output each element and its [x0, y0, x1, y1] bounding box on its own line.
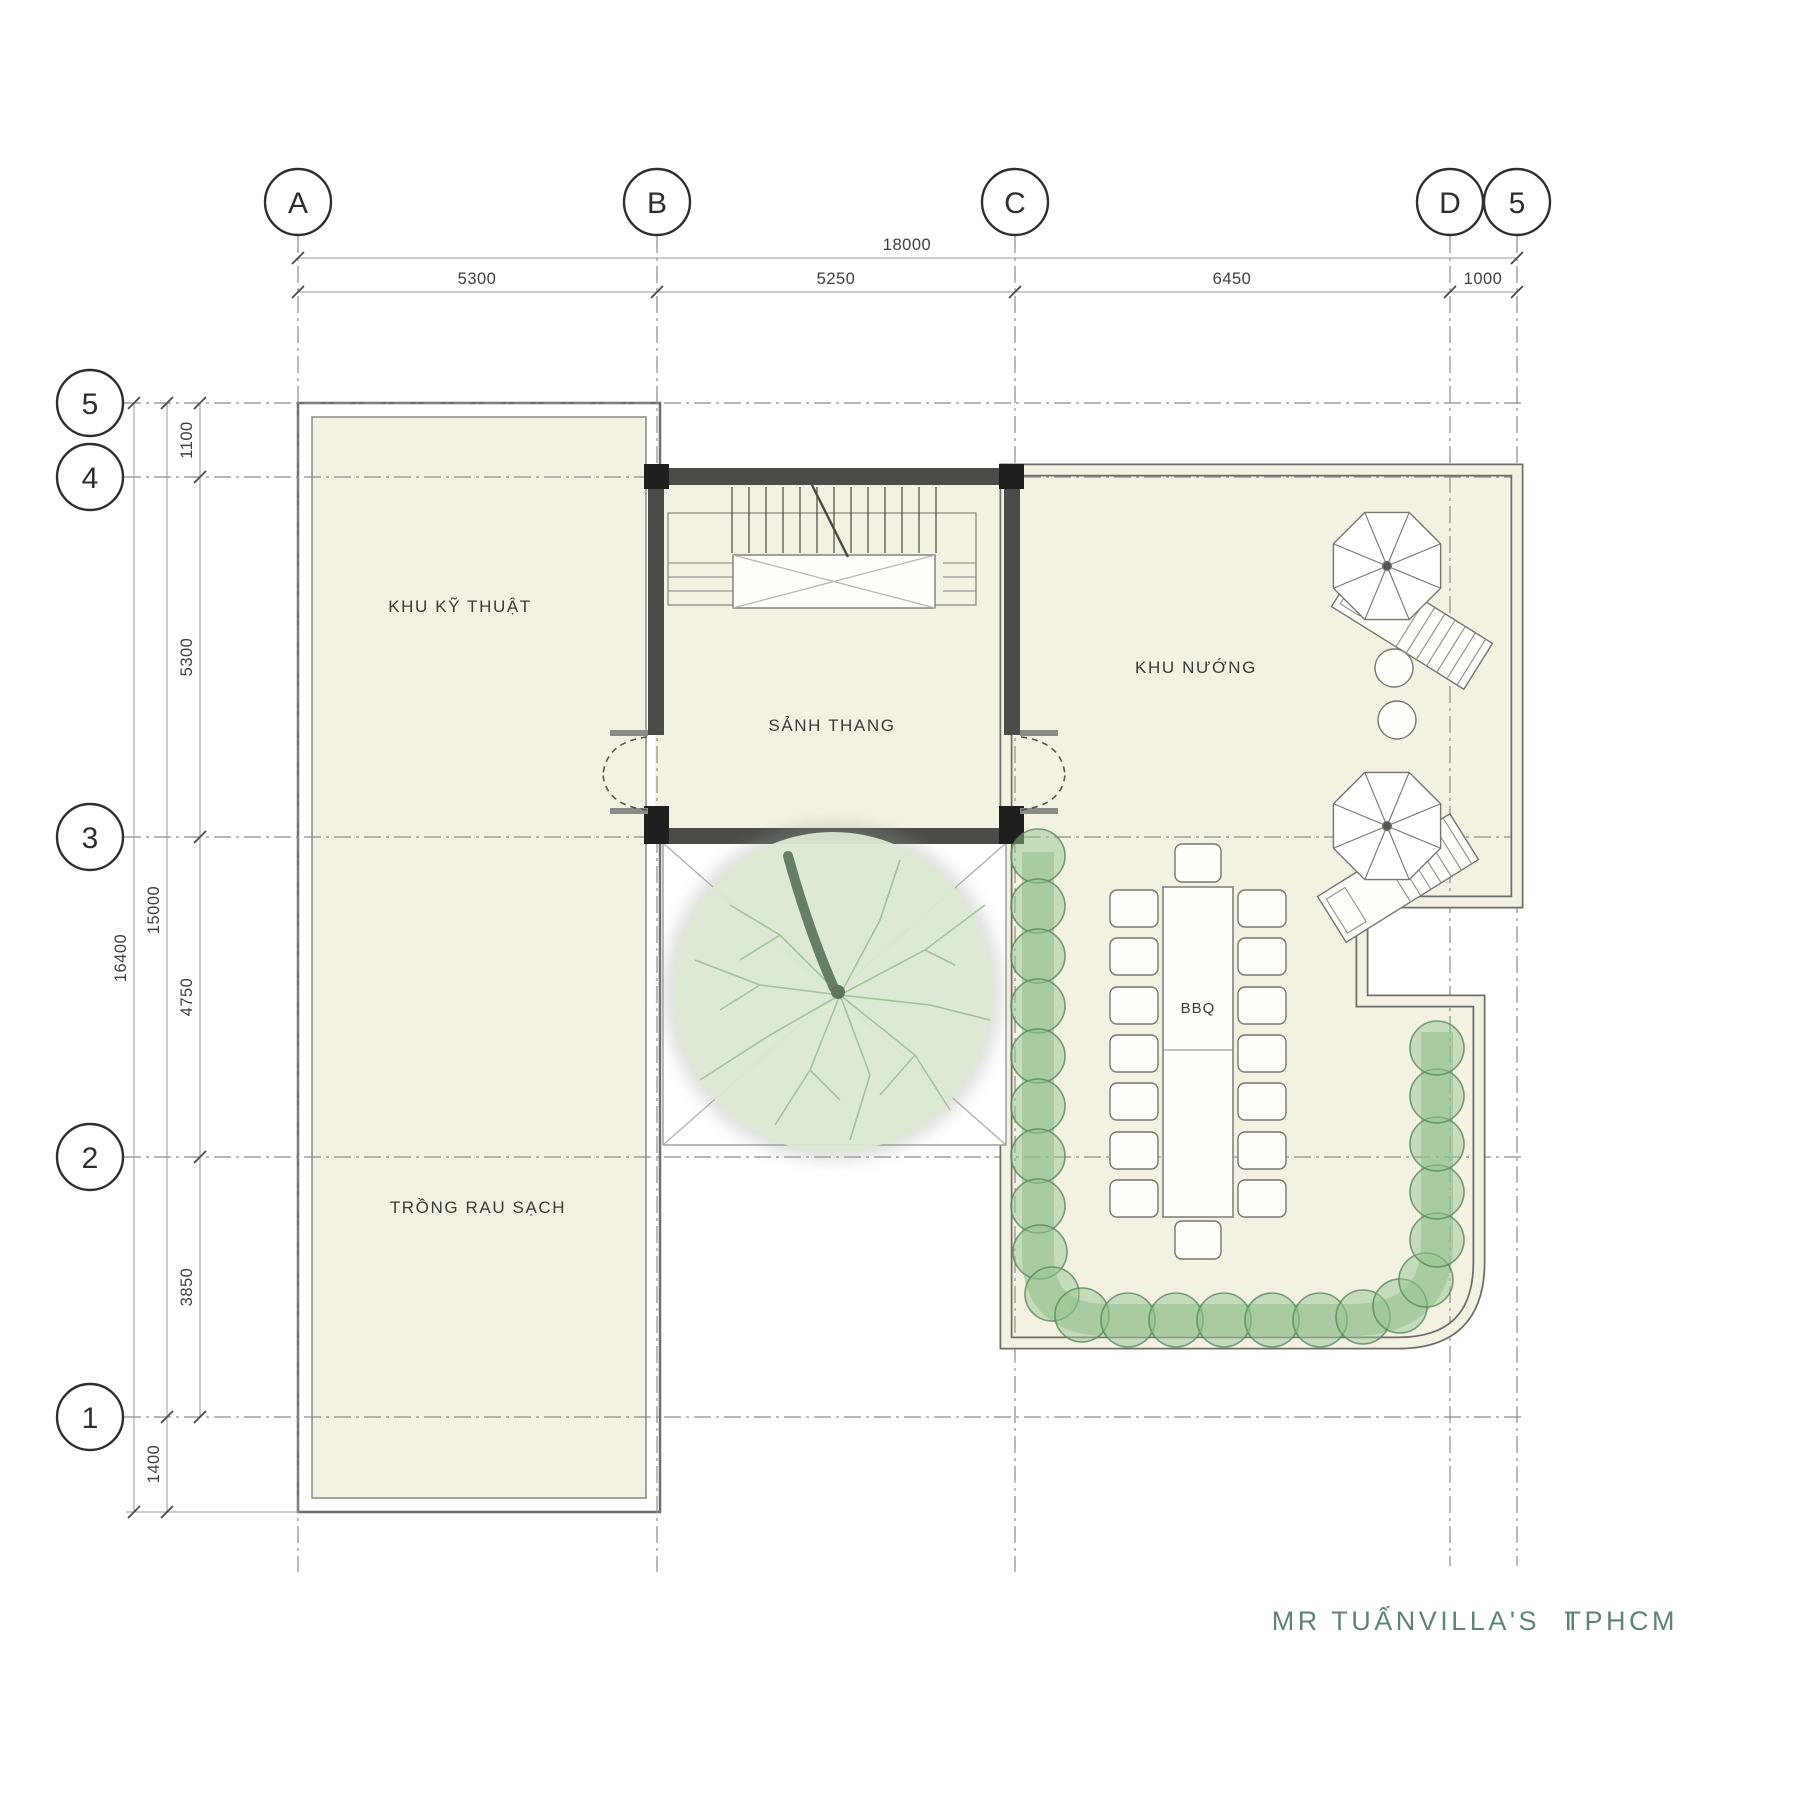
bbq-set: BBQ — [1110, 844, 1286, 1259]
left-dimensions: 16400 15000 1400 1100 5300 4750 3850 — [112, 397, 298, 1518]
grid-label-2: 2 — [82, 1142, 99, 1175]
dim-seg-d5: 1000 — [1464, 270, 1503, 288]
title-location: TPHCM — [1565, 1606, 1679, 1636]
dim-total-width: 18000 — [883, 236, 931, 254]
dim-below-row1: 1400 — [145, 1445, 163, 1484]
room-label-grill: KHU NƯỚNG — [1135, 658, 1257, 677]
room-label-vegetable: TRỒNG RAU SẠCH — [390, 1198, 566, 1217]
bbq-label: BBQ — [1181, 1000, 1216, 1017]
side-table-1 — [1375, 649, 1413, 687]
dim-seg-32: 4750 — [178, 978, 196, 1017]
dim-seg-54: 1100 — [178, 421, 196, 458]
grid-label-B: B — [647, 187, 667, 220]
door-stub-left-top — [610, 730, 648, 736]
door-stub-right-top — [1020, 730, 1058, 736]
drawing-title: MR TUẤNVILLA'S I TPHCM — [1272, 1605, 1678, 1636]
stair-wall-left — [648, 468, 664, 735]
title-client: MR TUẤNVILLA'S — [1272, 1605, 1540, 1636]
grid-bubbles-left: 5 4 3 2 1 — [57, 370, 123, 1450]
top-dimensions: 18000 5300 5250 6450 1000 — [292, 236, 1523, 298]
tree-trunk-center — [831, 985, 845, 999]
bbq-table — [1163, 887, 1233, 1217]
dim-overall-height: 16400 — [112, 934, 130, 982]
stair-wall-right — [1004, 468, 1020, 735]
corner-post-top-left — [644, 464, 669, 489]
tree — [663, 822, 1003, 1162]
floor-plan-page: BBQ — [0, 0, 1800, 1800]
grid-label-A: A — [288, 187, 308, 220]
dim-seg-bc: 5250 — [817, 270, 856, 288]
dim-seg-43: 5300 — [178, 638, 196, 677]
grid-label-1: 1 — [82, 1402, 99, 1435]
dim-main-height: 15000 — [145, 886, 163, 934]
dim-seg-ab: 5300 — [458, 270, 497, 288]
grid-label-5-top: 5 — [1509, 187, 1526, 220]
grid-label-3: 3 — [82, 822, 99, 855]
corner-post-top-right — [999, 464, 1024, 489]
grid-label-5-left: 5 — [82, 388, 99, 421]
dim-seg-cd: 6450 — [1213, 270, 1252, 288]
stair-wall-top — [648, 468, 1020, 485]
parasol-umbrella-1 — [1333, 512, 1440, 619]
room-label-stair-hall: SẢNH THANG — [768, 716, 895, 735]
left-block-inner-wall — [312, 417, 646, 1498]
floor-plan-drawing: BBQ — [0, 0, 1800, 1800]
grid-label-4: 4 — [82, 462, 99, 495]
parasol-umbrella-2 — [1333, 772, 1440, 879]
room-label-technical: KHU KỸ THUẬT — [388, 597, 532, 616]
grid-label-D: D — [1439, 187, 1461, 220]
side-table-2 — [1378, 701, 1416, 739]
dim-seg-21: 3850 — [178, 1268, 196, 1307]
grid-bubbles-top: A B C D 5 — [265, 169, 1550, 235]
grid-label-C: C — [1004, 187, 1026, 220]
